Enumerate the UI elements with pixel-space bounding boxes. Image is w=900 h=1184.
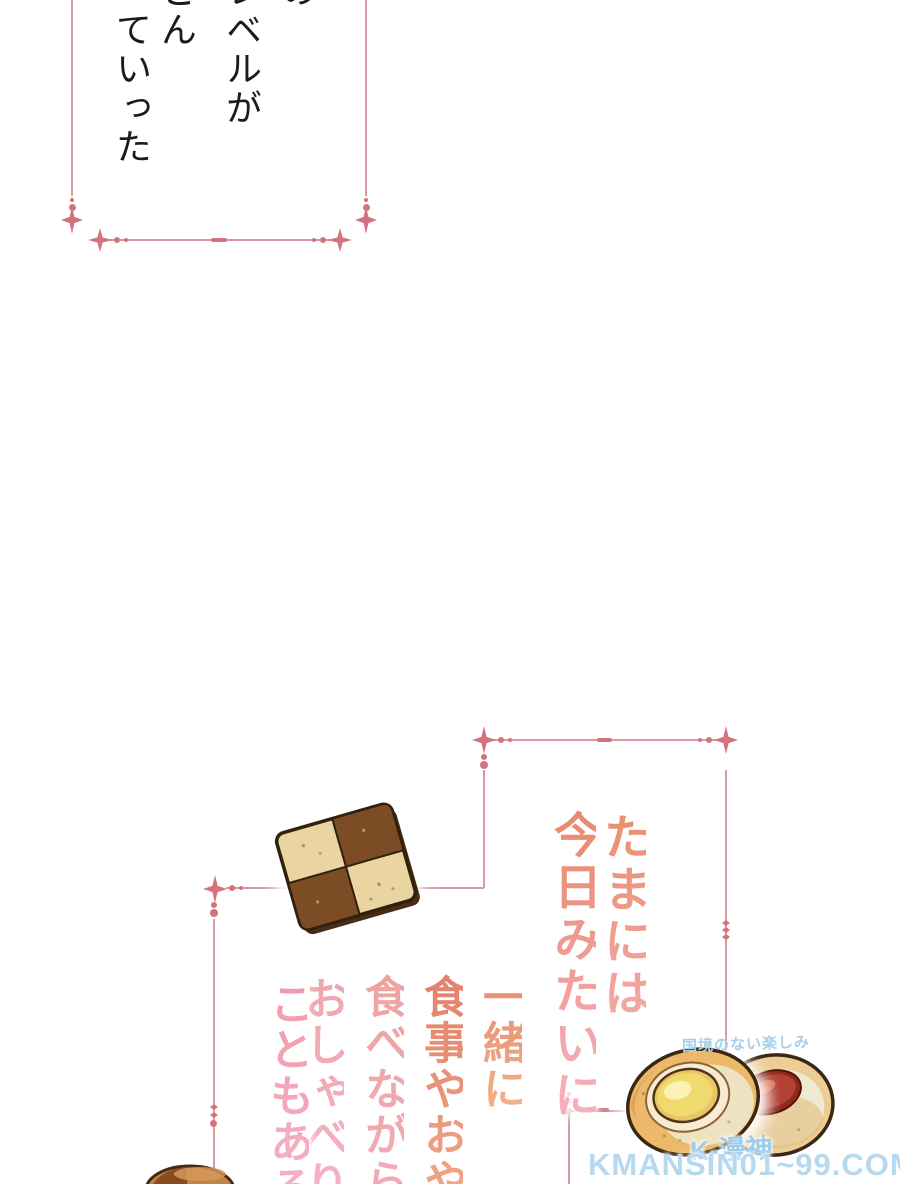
- frame-ornament: [508, 738, 512, 742]
- frame-ornament: [722, 934, 730, 940]
- sparkle-icon: [61, 206, 83, 234]
- frame-ornament: [320, 237, 326, 243]
- frame-ornament: [210, 909, 218, 917]
- frame-ornament: [239, 886, 243, 890]
- speech-column: たまには: [598, 812, 646, 1020]
- frame-ornament: [210, 1120, 217, 1127]
- frame-line: [71, 0, 73, 196]
- frame-ornament: [114, 237, 120, 243]
- speech-column: 一緒に: [478, 974, 522, 1112]
- sparkle-icon: [328, 228, 352, 252]
- sparkle-icon: [472, 726, 496, 754]
- frame-ornament: [698, 738, 702, 742]
- frame-ornament: [706, 737, 712, 743]
- frame-ornament: [70, 198, 74, 202]
- frame-ornament: [480, 761, 488, 769]
- frame-ornament: [364, 198, 368, 202]
- frame-line: [213, 919, 215, 1184]
- sparkle-icon: [714, 726, 738, 754]
- watermark-url: KMANSIN01~99.COM: [588, 1147, 900, 1183]
- watermark-tagline: 国境のない楽しみ: [682, 1031, 811, 1056]
- sparkle-icon: [88, 228, 112, 252]
- frame-ornament: [229, 885, 235, 891]
- frame-ornament: [722, 927, 730, 933]
- frame-ornament: [211, 902, 217, 908]
- frame-ornament: [210, 1104, 218, 1110]
- frame-ornament: [211, 238, 227, 242]
- frame-ornament: [210, 1112, 218, 1118]
- narration-column: どん: [157, 0, 193, 50]
- sparkle-icon: [355, 206, 377, 234]
- partial-cookie-illustration: [138, 1164, 248, 1184]
- frame-ornament: [312, 238, 316, 242]
- manga-page: の レベルが どん っていった たまに: [0, 0, 900, 1184]
- frame-line: [365, 0, 367, 196]
- frame-ornament: [498, 737, 504, 743]
- narration-column: レベルが: [222, 0, 258, 128]
- speech-column: 今日みたいに: [548, 810, 596, 1122]
- frame-ornament: [722, 920, 730, 926]
- frame-line: [483, 770, 485, 888]
- checkered-cookie-illustration: [262, 800, 437, 950]
- speech-column: こともある: [265, 981, 309, 1184]
- frame-ornament: [597, 738, 612, 742]
- frame-ornament: [124, 238, 128, 242]
- speech-column: 食べながら: [360, 974, 404, 1184]
- sparkle-icon: [203, 875, 227, 903]
- frame-ornament: [481, 754, 487, 760]
- narration-column: の: [277, 0, 313, 11]
- speech-column: 食事やおや: [419, 974, 463, 1184]
- narration-column: っていった: [112, 0, 148, 167]
